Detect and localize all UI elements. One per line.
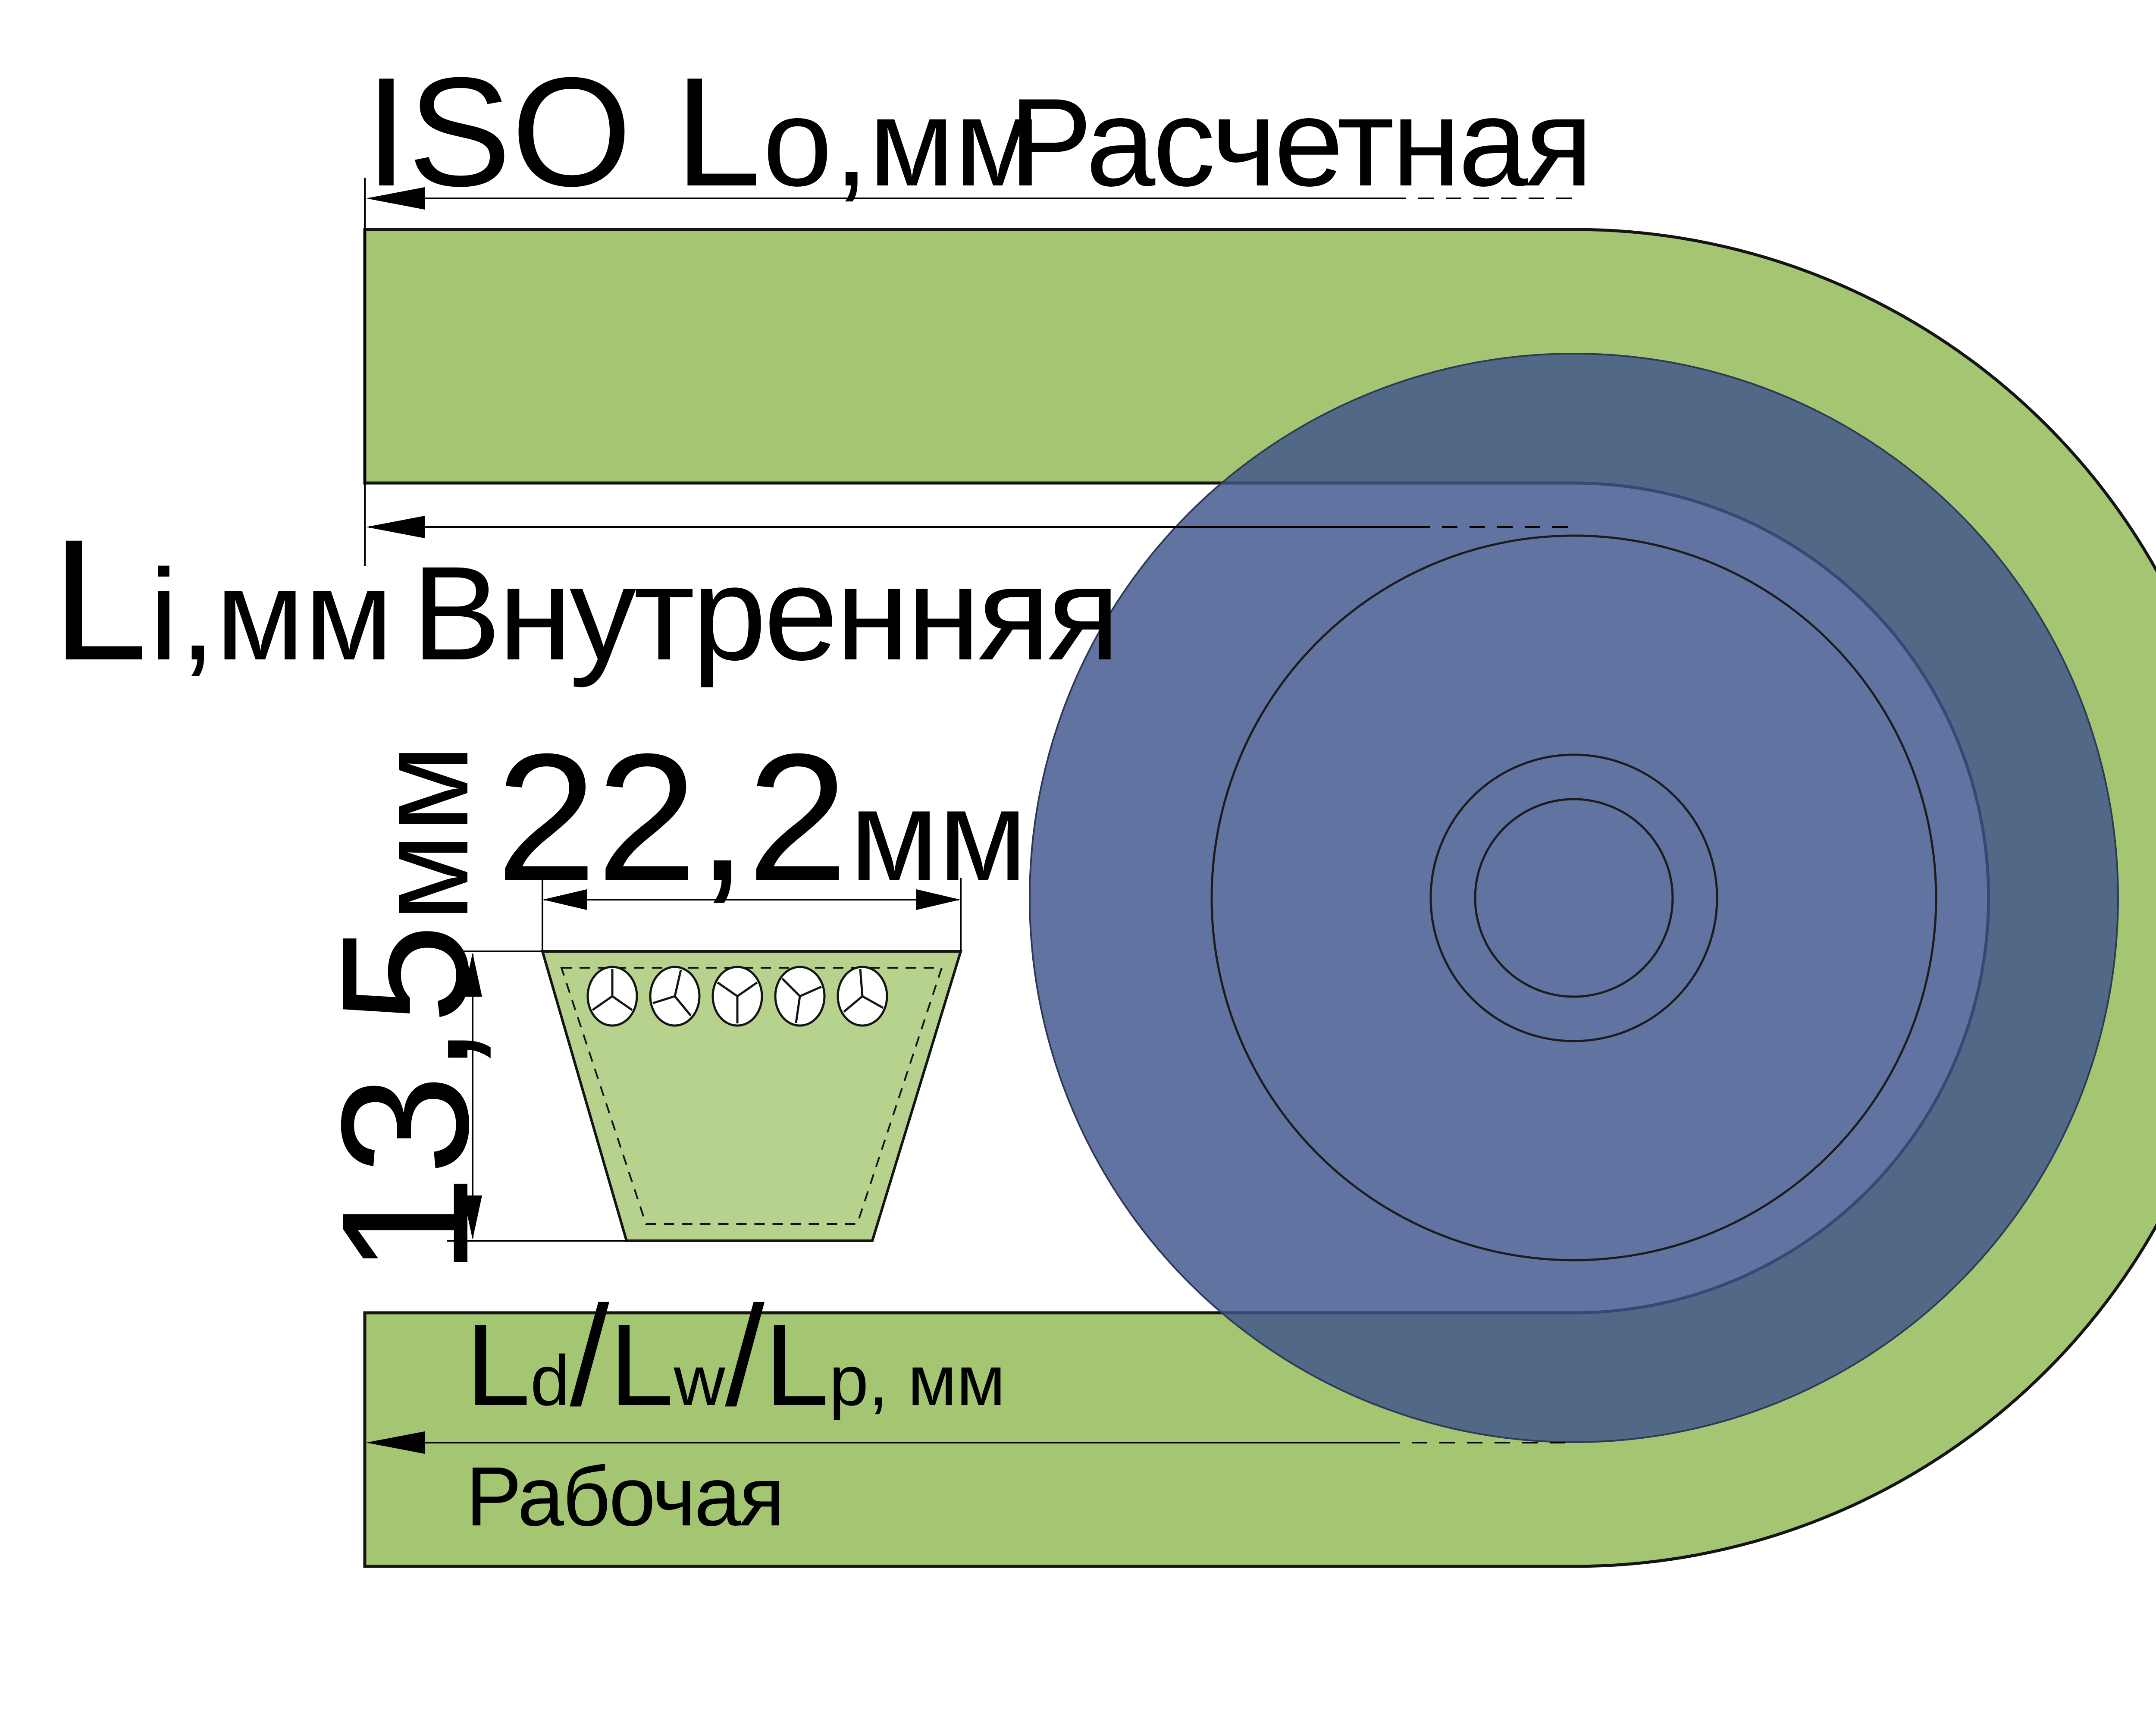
inner-length-caption: Внутренняя <box>412 538 1117 689</box>
section-height-units: мм <box>350 744 495 922</box>
section-width-value: 22,2 <box>496 716 848 919</box>
outer-length-prefix: ISO L <box>365 45 761 219</box>
inner-length-prefix: L <box>52 503 147 696</box>
outer-length-subscript: o <box>763 72 832 212</box>
outer-length-label: ISO L o ,мм <box>365 45 1040 219</box>
working-length-caption: Рабочая <box>466 1449 783 1544</box>
working-length-l3: L <box>765 1300 829 1430</box>
cord-symbol <box>775 967 824 1026</box>
working-length-l1: L <box>466 1300 530 1430</box>
arrowhead-left-icon <box>366 516 425 538</box>
section-height-value: 13,5 <box>304 924 506 1276</box>
outer-length-caption: Расчетная <box>1009 72 1591 212</box>
section-height-label: 13,5 мм <box>304 744 506 1276</box>
working-length-s2: w <box>674 1341 726 1420</box>
cord-symbol <box>588 967 637 1026</box>
cord-symbol <box>650 967 699 1026</box>
diagram-canvas: ISO L o ,мм Расчетная L i ,мм Внутренняя… <box>0 0 2156 1713</box>
v-belt-length-diagram: ISO L o ,мм Расчетная L i ,мм Внутренняя… <box>0 0 2156 1713</box>
section-width-label: 22,2 мм <box>496 716 1027 919</box>
working-length-s3: p <box>829 1341 868 1420</box>
pulley-disc <box>1030 354 2118 1442</box>
working-length-units: , мм <box>868 1341 1005 1420</box>
inner-length-label: L i ,мм <box>52 503 393 696</box>
inner-length-subscript: i <box>149 542 178 687</box>
inner-length-units: ,мм <box>180 542 393 687</box>
working-length-s1: d <box>530 1341 570 1420</box>
working-length-slash: / <box>570 1276 610 1435</box>
working-length-slash: / <box>725 1276 765 1435</box>
working-length-label: Ld/Lw/Lp, мм <box>466 1276 1005 1435</box>
section-width-units: мм <box>849 762 1027 907</box>
cord-symbol <box>838 967 887 1026</box>
working-length-l2: L <box>609 1300 674 1430</box>
cord-symbol <box>713 967 762 1026</box>
belt-cross-section <box>542 951 961 1241</box>
